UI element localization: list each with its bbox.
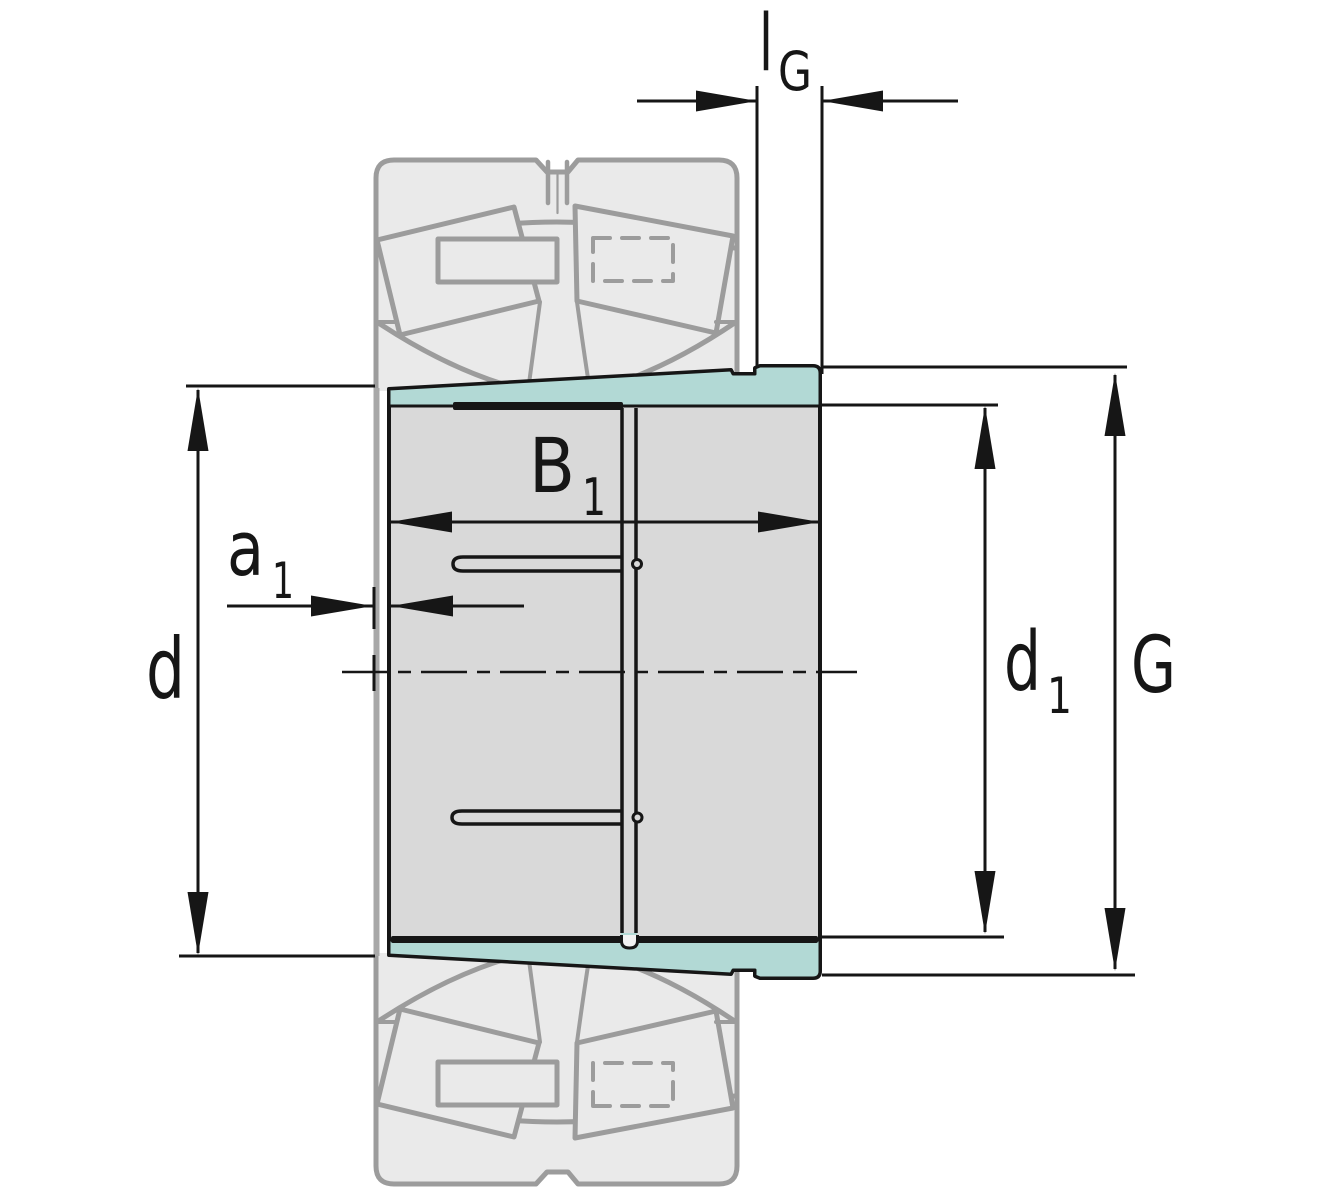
sleeve-slot-section-bottom	[391, 936, 818, 943]
sleeve-relief-hole-top	[633, 560, 642, 569]
ghost-cage-bar	[438, 239, 557, 282]
label-a1: a 1	[227, 504, 294, 610]
technical-drawing: l G B 1 a 1 d d 1 G	[0, 0, 1330, 1200]
label-g: G	[1131, 621, 1176, 711]
label-lg: l G	[759, 0, 812, 103]
label-d1: d 1	[1004, 615, 1072, 725]
ghost-bearing-bottom	[376, 951, 737, 1184]
label-d: d	[146, 620, 185, 718]
sleeve-relief-hole-bottom	[633, 813, 642, 822]
sleeve-slot-section-top	[453, 402, 623, 410]
sleeve-split-end-relief	[622, 935, 638, 948]
